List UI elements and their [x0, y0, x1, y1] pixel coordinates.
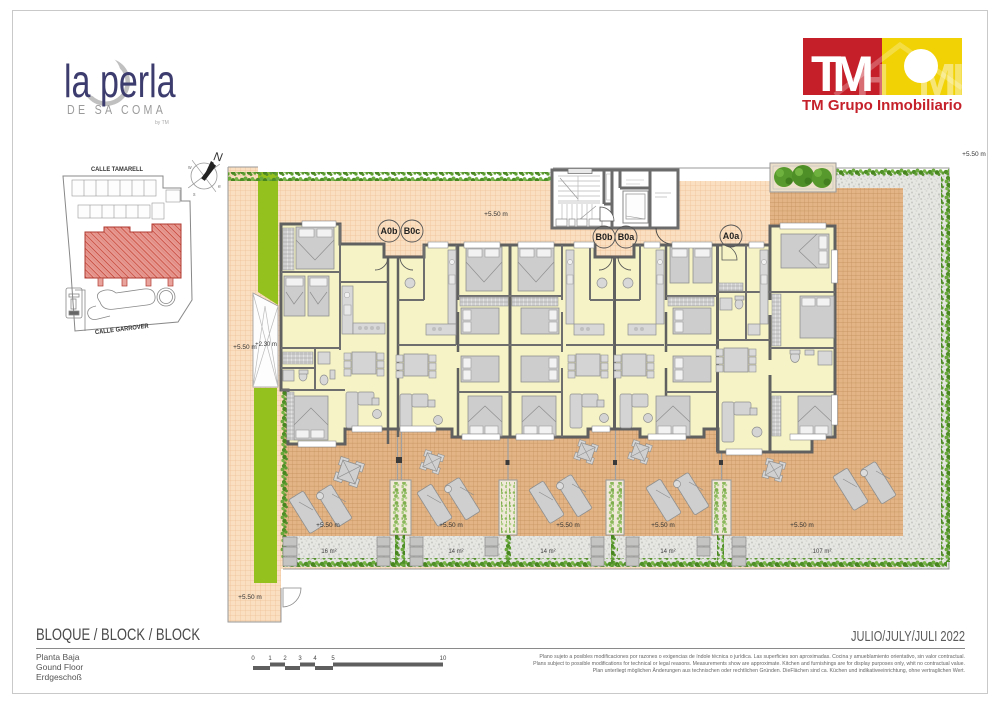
- svg-text:s: s: [193, 192, 196, 198]
- svg-text:+5.50 m: +5.50 m: [316, 522, 340, 529]
- svg-text:0: 0: [251, 656, 255, 662]
- svg-text:DE SA COMA: DE SA COMA: [67, 102, 166, 117]
- svg-text:Erdgeschoß: Erdgeschoß: [36, 672, 82, 682]
- svg-text:1: 1: [268, 656, 272, 662]
- svg-text:BLOQUE / BLOCK / BLOCK: BLOQUE / BLOCK / BLOCK: [36, 626, 200, 644]
- svg-text:e: e: [218, 184, 221, 190]
- svg-text:+5.50 m: +5.50 m: [233, 344, 257, 351]
- svg-text:A0b: A0b: [380, 226, 398, 236]
- svg-text:Plan unterliegt möglichen Ände: Plan unterliegt möglichen Änderungen aus…: [593, 667, 965, 674]
- svg-text:+5.50 m: +5.50 m: [484, 211, 508, 218]
- svg-text:14 m²: 14 m²: [448, 549, 463, 555]
- svg-text:B0c: B0c: [404, 226, 421, 236]
- svg-text:by TM: by TM: [155, 120, 169, 126]
- svg-text:N: N: [212, 149, 223, 164]
- svg-text:107 m²: 107 m²: [813, 549, 832, 555]
- svg-text:10: 10: [440, 656, 447, 662]
- svg-text:JULIO/JULY/JULI 2022: JULIO/JULY/JULI 2022: [851, 628, 965, 645]
- svg-text:TM Grupo Inmobiliario: TM Grupo Inmobiliario: [802, 97, 962, 114]
- svg-text:5: 5: [331, 656, 335, 662]
- svg-text:+5.50 m: +5.50 m: [790, 522, 814, 529]
- svg-text:14 m²: 14 m²: [660, 549, 675, 555]
- svg-text:14 m²: 14 m²: [540, 549, 555, 555]
- svg-text:CALLE GARROVER: CALLE GARROVER: [95, 323, 150, 337]
- svg-text:w: w: [188, 165, 192, 171]
- svg-text:4: 4: [313, 656, 317, 662]
- svg-text:2: 2: [283, 656, 287, 662]
- svg-text:16 m²: 16 m²: [321, 549, 336, 555]
- svg-text:B0a: B0a: [618, 232, 636, 242]
- svg-text:+5.50 m: +5.50 m: [556, 522, 580, 529]
- svg-text:Plano sujeto a posibles modifi: Plano sujeto a posibles modificaciones p…: [539, 654, 965, 660]
- svg-text:Planta Baja: Planta Baja: [36, 652, 80, 662]
- svg-text:Plans subject to possible modi: Plans subject to possible modifications …: [533, 661, 965, 667]
- svg-text:la perla: la perla: [64, 55, 176, 107]
- svg-text:TM: TM: [811, 46, 874, 102]
- svg-text:A0a: A0a: [723, 231, 741, 241]
- svg-text:Gound Floor: Gound Floor: [36, 662, 83, 672]
- svg-text:+5.50 m: +5.50 m: [962, 151, 986, 158]
- svg-text:3: 3: [298, 656, 302, 662]
- svg-text:+5.50 m: +5.50 m: [651, 522, 675, 529]
- svg-text:B0b: B0b: [595, 232, 613, 242]
- svg-text:+5.50 m: +5.50 m: [439, 522, 463, 529]
- svg-text:CALLE TAMARELL: CALLE TAMARELL: [91, 166, 143, 173]
- svg-text:+2.30 m: +2.30 m: [255, 342, 277, 348]
- svg-text:+5.50 m: +5.50 m: [238, 594, 262, 601]
